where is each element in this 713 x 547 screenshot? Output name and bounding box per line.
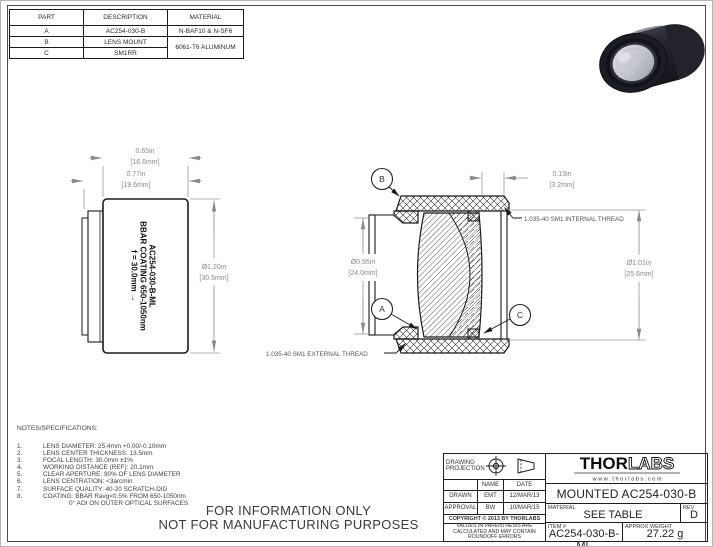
- retaining-ring-section-bottom: [468, 329, 479, 339]
- approval-name: BW: [478, 503, 504, 514]
- note-item-8: 8.COATING: BBAR Ravg<0.5% FROM 650-1050n…: [17, 493, 357, 500]
- material-rev-row: MATERIAL SEE TABLE REV D: [546, 504, 707, 522]
- cell-material-a: N-BAF10 & N-SF6: [168, 26, 244, 37]
- notes-section: NOTES/SPECIFICATIONS: 1.LENS DIAMETER: 2…: [17, 425, 357, 507]
- weight-value: 27.22 g: [623, 528, 707, 540]
- dim-face-width-mm: [16.6mm]: [130, 159, 159, 166]
- dim-overall-width-in: 0.77in: [126, 171, 145, 178]
- dim-face-width-in: 0.65in: [135, 148, 154, 155]
- dim-outer-dia-in: Ø1.20in: [202, 264, 227, 271]
- thorlabs-logo: THORLABS w w w . t h o r l a b s . c o m: [546, 454, 707, 484]
- note-item-2: 2.LENS CENTER THICKNESS: 13.5mm: [17, 450, 357, 457]
- table-row-a: A AC254-030-B N-BAF10 & N-SF6: [10, 26, 244, 37]
- engraving-line-1: AC254-030-B-ML: [148, 244, 157, 308]
- retaining-ring-section-top: [468, 211, 479, 221]
- dim-thread-dia-mm: [25.6mm]: [624, 271, 653, 278]
- lens-mount-photo: [593, 15, 712, 100]
- dim-ring-depth-in: 0.13in: [552, 171, 571, 178]
- cell-part-b: B: [10, 37, 84, 48]
- info-only-line-1: FOR INFORMATION ONLY: [106, 504, 471, 518]
- approval-date: 10/MAR/15: [504, 503, 545, 514]
- material-value: SEE TABLE: [546, 509, 680, 521]
- note-item-4: 4.WORKING DISTANCE (REF): 20.1mm: [17, 464, 357, 471]
- material-cell: MATERIAL SEE TABLE: [546, 504, 681, 521]
- approval-label: APPROVAL: [444, 503, 478, 514]
- header-description: DESCRIPTION: [84, 10, 168, 26]
- logo-thor-text: THOR: [579, 454, 627, 473]
- disclaimer-note: VALUES IN PARENTHESIS ARE CALCULATED AND…: [444, 524, 545, 541]
- parts-table-header-row: PART DESCRIPTION MATERIAL: [10, 10, 244, 26]
- dim-ring-depth-mm: [3.2mm]: [549, 182, 574, 189]
- projection-target-icon: [486, 456, 506, 476]
- note-item-3: 3.FOCAL LENGTH: 30.0mm ±1%: [17, 457, 357, 464]
- dim-clear-aperture-in: Ø0.95in: [351, 259, 376, 266]
- dim-outer-dia-mm: [30.5mm]: [199, 275, 228, 282]
- balloon-c: C: [517, 310, 523, 320]
- note-item-1: 1.LENS DIAMETER: 25.4mm +0.00/-0.10mm: [17, 443, 357, 450]
- approval-row: APPROVAL BW 10/MAR/15: [444, 503, 545, 515]
- projection-row: DRAWING PROJECTION: [444, 454, 545, 480]
- table-row-b: B LENS MOUNT 6061-T6 ALUMINUM: [10, 37, 244, 48]
- side-view-drawing: AC254-030-B-ML BBAR COATING 650-1050nm f…: [56, 139, 241, 374]
- external-thread-label: 1.035-40 SM1 EXTERNAL THREAD: [266, 351, 368, 358]
- title-block: DRAWING PROJECTION: [443, 453, 708, 542]
- rev-cell: REV D: [681, 504, 707, 521]
- info-only-line-2: NOT FOR MANUFACTURING PURPOSES: [106, 518, 471, 532]
- product-title: MOUNTED AC254-030-B: [546, 484, 707, 504]
- rev-value: D: [681, 509, 707, 521]
- name-date-header-row: NAME DATE: [444, 480, 545, 491]
- projection-label: DRAWING PROJECTION: [446, 460, 482, 473]
- note-item-7: 7.SURFACE QUALITY: 40-20 SCRATCH-DIG: [17, 486, 357, 493]
- dim-thread-dia-in: Ø1.01in: [627, 260, 652, 267]
- lens-doublet-section: [418, 211, 483, 339]
- projection-icons: [482, 455, 542, 477]
- internal-thread-label: 1.035-40 SM1 INTERNAL THREAD: [524, 216, 624, 223]
- product-photo: [579, 3, 713, 115]
- item-cell: ITEM # AC254-030-B-ML: [546, 523, 623, 541]
- cell-desc-a: AC254-030-B: [84, 26, 168, 37]
- svg-text:THORLABS: THORLABS: [579, 454, 673, 473]
- date-header: DATE: [504, 480, 545, 490]
- title-block-right: THORLABS w w w . t h o r l a b s . c o m…: [546, 454, 707, 541]
- notes-title: NOTES/SPECIFICATIONS:: [17, 425, 357, 432]
- parts-table: PART DESCRIPTION MATERIAL A AC254-030-B …: [9, 9, 244, 59]
- engraving-line-2: BBAR COATING 650-1050nm: [139, 221, 148, 331]
- logo-labs-text: LABS: [627, 454, 673, 473]
- item-value: AC254-030-B-ML: [546, 528, 622, 547]
- information-only-notice: FOR INFORMATION ONLY NOT FOR MANUFACTURI…: [106, 504, 471, 532]
- drawn-name: EMT: [478, 491, 504, 502]
- item-weight-row: ITEM # AC254-030-B-ML APPROX WEIGHT 27.2…: [546, 523, 707, 541]
- name-header: NAME: [478, 480, 504, 490]
- header-part: PART: [10, 10, 84, 26]
- balloon-b: B: [379, 174, 385, 184]
- projection-cone-icon: [518, 459, 534, 473]
- balloon-a: A: [379, 304, 385, 314]
- title-block-left: DRAWING PROJECTION: [444, 454, 546, 541]
- dim-clear-aperture-mm: [24.0mm]: [348, 270, 377, 277]
- cell-desc-c: SM1RR: [84, 48, 168, 59]
- drawing-sheet: PART DESCRIPTION MATERIAL A AC254-030-B …: [0, 0, 713, 547]
- note-item-6: 6.LENS CENTRATION: <3arcmin: [17, 478, 357, 485]
- cell-part-c: C: [10, 48, 84, 59]
- logo-website: w w w . t h o r l a b s . c o m: [591, 477, 661, 483]
- drawn-date: 12/MAR/13: [504, 491, 545, 502]
- note-item-5: 5.CLEAR APERTURE: 90% OF LENS DIAMETER: [17, 471, 357, 478]
- drawn-row: DRAWN EMT 12/MAR/13: [444, 491, 545, 503]
- cell-material-bc: 6061-T6 ALUMINUM: [168, 37, 244, 59]
- cell-desc-b: LENS MOUNT: [84, 37, 168, 48]
- drawn-label: DRAWN: [444, 491, 478, 502]
- cell-part-a: A: [10, 26, 84, 37]
- weight-cell: APPROX WEIGHT 27.22 g: [623, 523, 707, 541]
- dim-overall-width-mm: [19.6mm]: [121, 182, 150, 189]
- engraving-line-3: f = 30.0mm →: [130, 250, 139, 302]
- section-view-drawing: B A C: [256, 159, 671, 366]
- header-material: MATERIAL: [168, 10, 244, 26]
